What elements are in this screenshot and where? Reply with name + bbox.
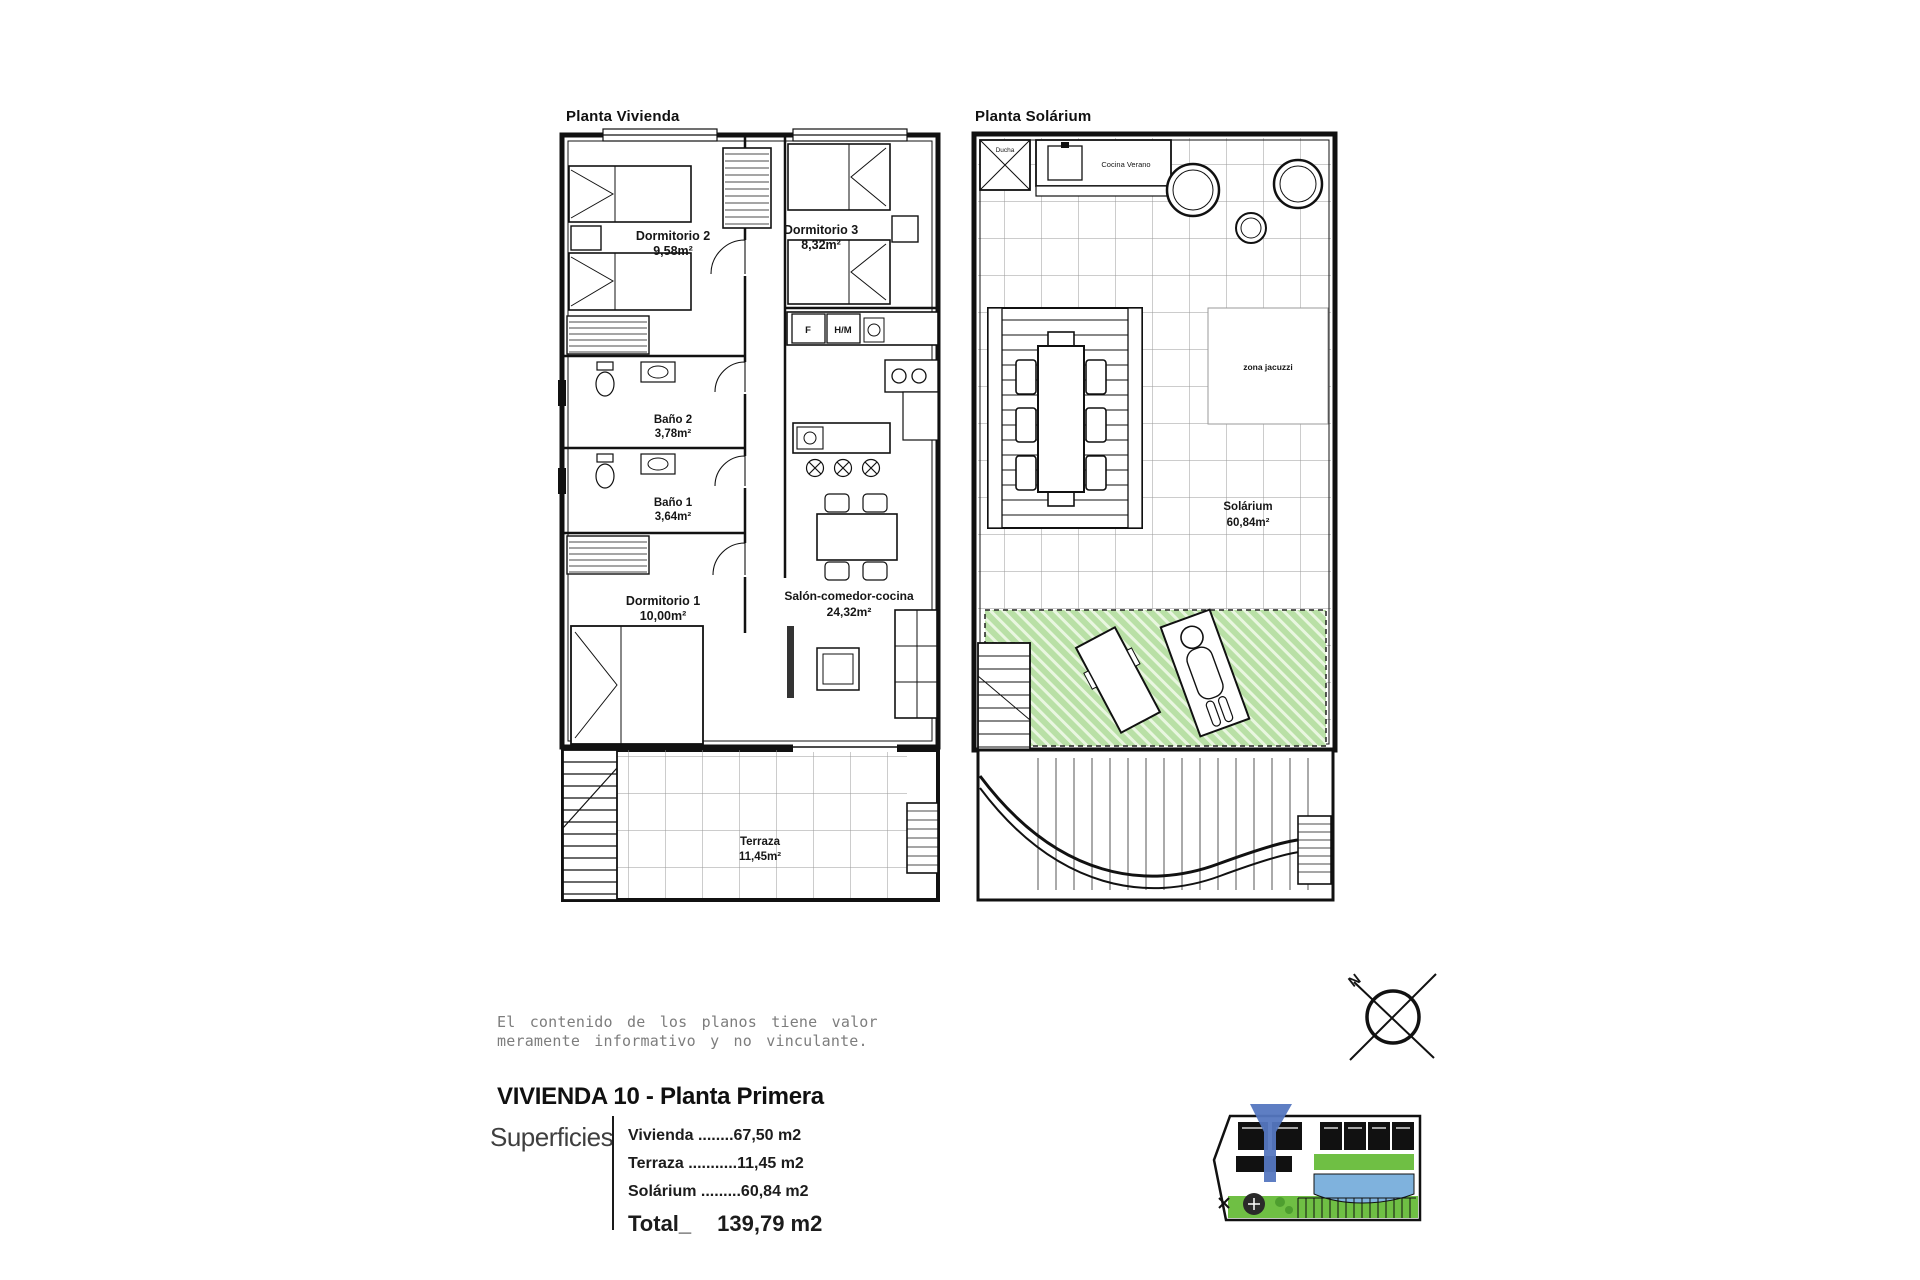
washer-label: H/M <box>834 325 852 336</box>
fridge-label: F <box>805 325 811 336</box>
surface-value: 60,84 m2 <box>741 1183 809 1200</box>
site-pool <box>1314 1174 1414 1203</box>
dot-leader: ........ <box>698 1127 734 1144</box>
bano1-name: Baño 1 <box>654 497 693 509</box>
surface-value: 67,50 m2 <box>734 1127 802 1144</box>
terraza-area-label: 11,45m² <box>739 851 781 863</box>
surface-row-solarium: Solárium .........60,84 m2 <box>628 1178 822 1206</box>
surface-label: Terraza <box>628 1155 688 1172</box>
total-label: Total_ <box>628 1211 691 1236</box>
disclaimer-line2: meramente informativo y no vinculante. <box>497 1032 878 1051</box>
salon-area: 24,32m² <box>827 605 872 619</box>
kitchen-island <box>793 423 890 477</box>
dormitorio2-area: 9,58m² <box>653 244 693 258</box>
site-plan-thumbnail <box>1202 1098 1437 1258</box>
surface-total-row: Total_139,79 m2 <box>628 1211 822 1237</box>
terraza-name: Terraza <box>740 836 781 848</box>
tv-unit <box>787 626 794 698</box>
superficies-label: Superficies <box>490 1122 613 1153</box>
north-compass-icon: N <box>1336 960 1446 1070</box>
surface-value: 11,45 m2 <box>737 1155 804 1172</box>
floorplan-sheet: Planta Vivienda <box>0 0 1920 1280</box>
titleblock-divider <box>612 1116 614 1230</box>
solarium-area-label: 60,84m² <box>1227 517 1270 529</box>
summer-kitchen-label: Cocina Verano <box>1101 160 1150 169</box>
bano2-name: Baño 2 <box>654 414 692 426</box>
jacuzzi-zone-label: zona jacuzzi <box>1243 362 1293 372</box>
terraza-area: Terraza 11,45m² <box>563 742 938 900</box>
pergola-dining <box>988 308 1142 528</box>
surface-row-terraza: Terraza ...........11,45 m2 <box>628 1150 822 1178</box>
plan-solarium-drawing: Ducha Cocina Verano <box>968 128 1343 913</box>
bano1-area: 3,64m² <box>655 511 692 523</box>
shower-label: Ducha <box>996 147 1015 154</box>
salon-name: Salón-comedor-cocina <box>784 589 914 603</box>
dormitorio2-name: Dormitorio 2 <box>636 229 710 243</box>
disclaimer-text: El contenido de los planos tiene valor m… <box>497 1013 878 1051</box>
surfaces-table: Vivienda ........67,50 m2 Terraza ......… <box>628 1122 822 1237</box>
surface-row-vivienda: Vivienda ........67,50 m2 <box>628 1122 822 1150</box>
dormitorio1-area: 10,00m² <box>640 609 687 623</box>
disclaimer-line1: El contenido de los planos tiene valor <box>497 1013 878 1032</box>
solarium-name: Solárium <box>1223 501 1272 513</box>
dormitorio3-area: 8,32m² <box>801 238 841 252</box>
lower-canopy <box>978 750 1333 900</box>
bathroom2-window-icon <box>558 380 566 406</box>
surface-label: Solárium <box>628 1183 701 1200</box>
dormitorio1-name: Dormitorio 1 <box>626 594 700 608</box>
green-deck-area <box>985 610 1326 746</box>
bathroom1-window-icon <box>558 468 566 494</box>
hall-wardrobe <box>723 148 771 228</box>
bano2-area: 3,78m² <box>655 428 692 440</box>
sofa <box>895 610 937 718</box>
sheet-title: VIVIENDA 10 - Planta Primera <box>497 1083 824 1111</box>
armchair <box>817 648 859 690</box>
site-green-band <box>1314 1154 1414 1170</box>
plan-vivienda-title: Planta Vivienda <box>566 108 680 125</box>
plan-solarium-title: Planta Solárium <box>975 108 1091 125</box>
dot-leader: ........... <box>688 1155 737 1172</box>
dot-leader: ......... <box>701 1183 741 1200</box>
surface-label: Vivienda <box>628 1127 698 1144</box>
plan-vivienda-drawing: F H/M <box>555 128 945 913</box>
dormitorio3-name: Dormitorio 3 <box>784 223 858 237</box>
total-value: 139,79 m2 <box>717 1211 822 1236</box>
